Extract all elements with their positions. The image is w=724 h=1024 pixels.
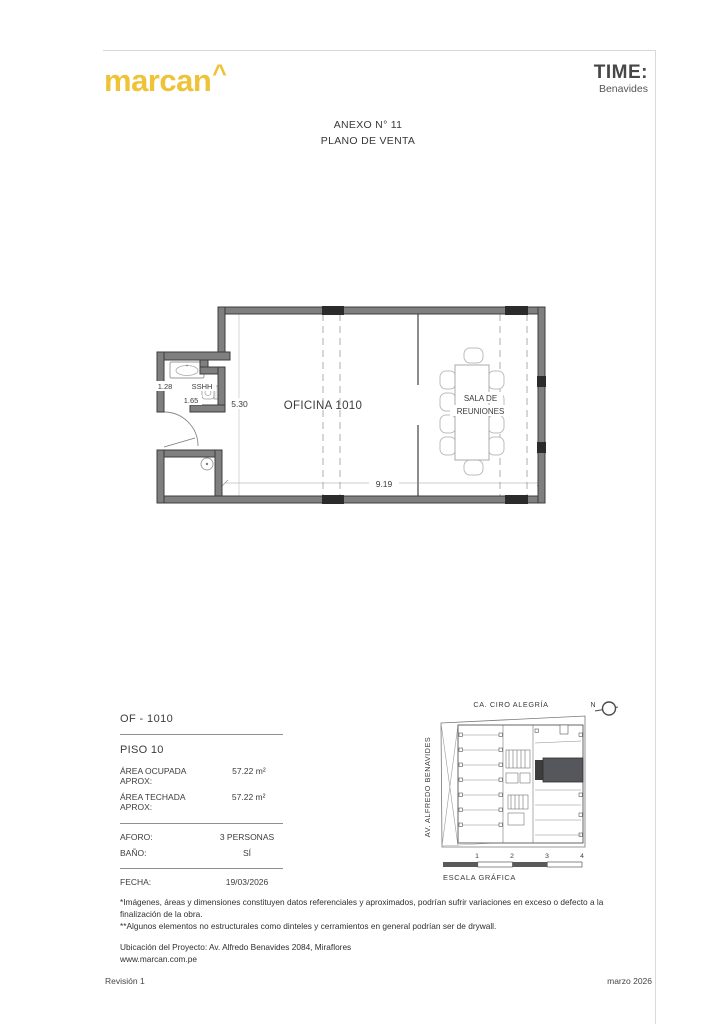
unit-lobby-dark xyxy=(535,760,543,780)
sheet-title: ANEXO N° 11 PLANO DE VENTA xyxy=(103,119,633,147)
capacity-row-value: 3 PERSONAS xyxy=(211,832,283,842)
street-left-label: AV. ALFREDO BENAVIDES xyxy=(423,737,432,837)
area-section: ÁREA OCUPADA APROX: 57.22 m² ÁREA TECHAD… xyxy=(120,766,283,824)
capacity-row: AFORO: 3 PERSONAS xyxy=(120,832,283,842)
meeting-room-label-1: SALA DE xyxy=(464,394,497,403)
sheet-right-edge xyxy=(655,50,656,1024)
time-logo-text: TIME: xyxy=(594,63,648,83)
time-benavides-logo: TIME: Benavides xyxy=(594,63,648,95)
scale-number: 3 xyxy=(545,853,549,860)
area-row-value: 57.22 m² xyxy=(214,792,283,802)
scale-number: 4 xyxy=(580,853,584,860)
disclaimer-1: *Imágenes, áreas y dimensiones constituy… xyxy=(120,897,636,921)
project-location: Ubicación del Proyecto: Av. Alfredo Bena… xyxy=(120,942,636,954)
north-compass-icon: N xyxy=(590,702,618,715)
capacity-row-value: SÍ xyxy=(211,848,283,858)
date-row: FECHA: 19/03/2026 xyxy=(120,877,283,887)
sink-fixture xyxy=(170,362,204,378)
date-row-value: 19/03/2026 xyxy=(211,877,283,887)
floor-label: PISO 10 xyxy=(120,735,283,766)
dim-width-label: 9.19 xyxy=(376,479,393,489)
marcan-logo-text: marcan xyxy=(104,63,211,98)
north-label: N xyxy=(590,702,595,709)
area-row-label: ÁREA OCUPADA APROX: xyxy=(120,766,215,786)
revision-label: Revisión 1 xyxy=(105,976,145,986)
unit-info-panel: OF - 1010 PISO 10 ÁREA OCUPADA APROX: 57… xyxy=(120,713,283,893)
disclaimer-2: **Algunos elementos no estructurales com… xyxy=(120,921,636,933)
footer-date: marzo 2026 xyxy=(607,976,652,986)
graphic-scale: 1 2 3 4 ESCALA GRÁFICA xyxy=(443,853,584,882)
capacity-row-label: AFORO: xyxy=(120,832,153,842)
door-swing-arc xyxy=(164,412,198,446)
scale-number: 2 xyxy=(510,853,514,860)
plan-sheet-page: { "header": { "brand": "marcan", "brand_… xyxy=(0,0,724,1024)
door-leaf xyxy=(164,438,195,447)
dim-bath-length-label: 1.65 xyxy=(184,396,199,405)
street-top-label: CA. CIRO ALEGRÍA xyxy=(473,700,548,709)
floor-drain-symbol xyxy=(201,458,213,470)
capacity-row-label: BAÑO: xyxy=(120,848,146,858)
scale-label: ESCALA GRÁFICA xyxy=(443,873,516,882)
highlighted-unit xyxy=(543,758,583,782)
bathroom-label: SSHH xyxy=(192,382,213,391)
area-row-value: 57.22 m² xyxy=(215,766,283,776)
area-row: ÁREA TECHADA APROX: 57.22 m² xyxy=(120,792,283,812)
marcan-logo: marcan^ xyxy=(104,60,226,99)
unit-code: OF - 1010 xyxy=(120,713,283,735)
scale-number: 1 xyxy=(475,853,479,860)
key-plan-map: CA. CIRO ALEGRÍA N AV. ALFREDO BENAVIDES xyxy=(415,695,625,890)
marcan-caret-icon: ^ xyxy=(212,60,226,88)
capacity-row: BAÑO: SÍ xyxy=(120,848,283,858)
dim-bath-width-label: 1.28 xyxy=(158,382,173,391)
building-footprint xyxy=(441,716,585,847)
plan-type: PLANO DE VENTA xyxy=(103,135,633,147)
office-room-label: OFICINA 1010 xyxy=(284,400,362,412)
meeting-room-label-2: REUNIONES xyxy=(457,407,505,416)
date-section: FECHA: 19/03/2026 xyxy=(120,869,283,887)
floor-plan-drawing: 1.28 SSHH 1.65 5.30 OFICINA 1010 SALA DE… xyxy=(140,288,570,513)
sheet-top-edge xyxy=(103,50,655,51)
website-link[interactable]: www.marcan.com.pe xyxy=(120,954,636,966)
date-row-label: FECHA: xyxy=(120,877,151,887)
time-logo-subtext: Benavides xyxy=(594,83,648,95)
notes-block: *Imágenes, áreas y dimensiones constituy… xyxy=(120,897,636,966)
area-row: ÁREA OCUPADA APROX: 57.22 m² xyxy=(120,766,283,786)
capacity-section: AFORO: 3 PERSONAS BAÑO: SÍ xyxy=(120,824,283,869)
annex-number: ANEXO N° 11 xyxy=(103,119,633,131)
dim-height-label: 5.30 xyxy=(231,399,248,409)
area-row-label: ÁREA TECHADA APROX: xyxy=(120,792,214,812)
